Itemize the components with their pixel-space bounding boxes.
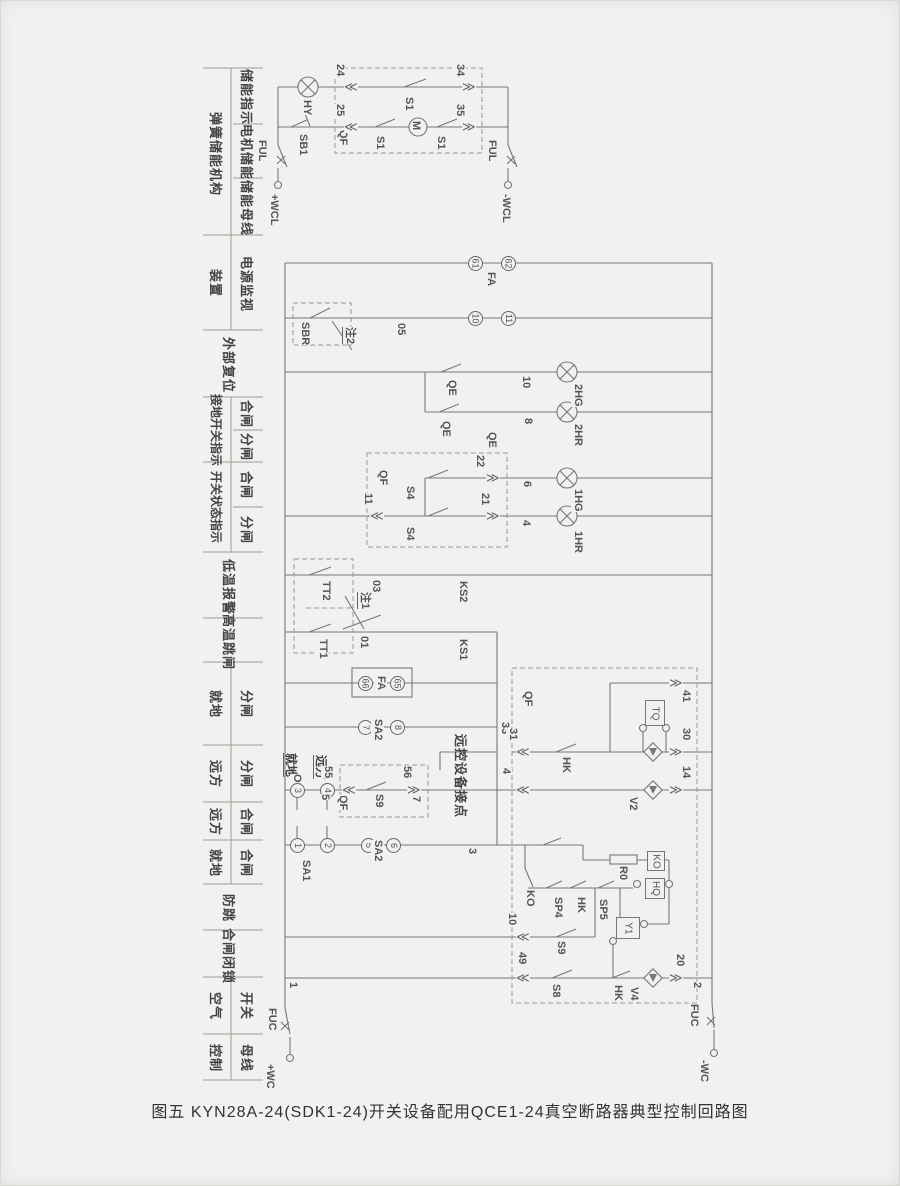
wire-20: 20 — [673, 954, 686, 966]
plug-contact-20-icon: ≫ — [669, 972, 683, 984]
box-label-qf-aux: QF — [376, 470, 389, 485]
group-label-device: 装置 — [209, 269, 222, 297]
coil-tq: TQ — [645, 700, 665, 726]
plug-contact-34-icon: ≫ — [462, 81, 476, 93]
group-label-remote: 远方 — [209, 760, 222, 788]
plug-contact-21-icon: ≫ — [486, 510, 500, 522]
plug-contact-49-icon: ≪ — [516, 972, 530, 984]
figure-caption: 图五 KYN28A-24(SDK1-24)开关设备配用QCE1-24真空断路器典… — [0, 1098, 900, 1122]
sub-label-remote-close: 合闸 — [240, 808, 253, 836]
button-label-sbr: SBR — [298, 322, 311, 345]
switch-label-sp4: SP4 — [551, 897, 564, 918]
fuse-label-ful-right: FUL — [485, 140, 498, 161]
terminal-1: 1 — [290, 838, 305, 853]
group-label-control: 控制 — [209, 1044, 222, 1072]
wire-11: 11 — [361, 493, 374, 505]
relay-label-ks1: KS1 — [456, 639, 469, 660]
wire-35: 35 — [453, 104, 466, 116]
label-remote-device-contacts: 远控设备接点 — [454, 734, 467, 818]
wire-01: 01 — [357, 636, 370, 648]
schematic-linework — [0, 0, 900, 1186]
switch-label-qe-1: QE — [445, 380, 458, 396]
terminal-label-wc-minus: -WC — [697, 1060, 710, 1082]
wire-03: 03 — [369, 580, 382, 592]
switch-label-qe-2: QE — [439, 421, 452, 437]
switch-label-s9-sel: S9 — [372, 794, 385, 807]
wire-49: 49 — [515, 952, 528, 964]
terminal-66: 66 — [358, 676, 373, 691]
switch-label-qe-3: QE — [485, 432, 498, 448]
plug-contact-11-icon: ≪ — [370, 510, 384, 522]
wire-1: 1 — [286, 982, 299, 988]
switch-label-s8: S8 — [549, 984, 562, 997]
plug-contact-10-icon: ≪ — [516, 931, 530, 943]
plug-contact-35-icon: ≫ — [462, 121, 476, 133]
relay-label-ks2: KS2 — [456, 581, 469, 602]
motor-m: M — [409, 121, 422, 130]
plug-contact-55-icon: ≪ — [342, 784, 356, 796]
resistor-label-r0: R0 — [616, 866, 629, 880]
fuse-label-fuc-left: FUC — [265, 1008, 278, 1031]
schematic-page: 弹簧储能机构 储能指示 电机储能 储能母线 装置 电源监视 外部复位 接地开关指… — [0, 0, 900, 1186]
wire-55: 55 — [321, 766, 334, 778]
fuse-label-ful-left: FUL — [255, 140, 268, 161]
relay-ko: KO — [647, 851, 665, 871]
wire-2: 2 — [690, 982, 703, 988]
switch-label-s4-1: S4 — [403, 486, 416, 499]
terminal-11: 11 — [501, 311, 516, 326]
plug-contact-22-icon: ≫ — [486, 472, 500, 484]
wire-31: 31 — [506, 728, 519, 740]
label-fa-terminals: FA — [484, 272, 497, 286]
lamp-label-hy: HY — [300, 100, 313, 115]
box-label-qf-main: QF — [521, 691, 534, 706]
wire-05: 05 — [394, 323, 407, 335]
sub-label-charge-indication: 储能指示 — [240, 69, 253, 125]
note-1: 注1 — [357, 592, 371, 609]
group-label-external-reset: 外部复位 — [222, 337, 235, 393]
diode-label-v2: V2 — [626, 797, 639, 810]
sub-label-es-open: 分闸 — [240, 433, 253, 461]
group-label-switch-status-ind: 开关状态指示 — [209, 471, 222, 543]
terminal-label-wcl-plus: +WCL — [267, 194, 280, 225]
group-label-air: 空气 — [209, 992, 222, 1020]
wire-14: 14 — [679, 766, 692, 778]
wire-6: 6 — [520, 481, 533, 487]
terminal-label-wcl-minus: -WCL — [499, 194, 512, 223]
sub-label-local-open: 分闸 — [240, 690, 253, 718]
group-label-earth-switch-ind: 接地开关指示 — [209, 394, 222, 466]
lamp-label-1hg: 1HG — [571, 489, 584, 512]
wire-56: 56 — [400, 766, 413, 778]
note-2: 注2 — [342, 327, 356, 344]
group-label-spring-mechanism: 弹簧储能机构 — [209, 112, 222, 196]
selector-pos-o: O — [290, 774, 303, 783]
group-label-remote2: 远方 — [209, 808, 222, 836]
sub-label-remote-open: 分闸 — [240, 760, 253, 788]
terminal-2: 2 — [320, 838, 335, 853]
group-label-closing-lockout: 合闸闭锁 — [222, 928, 235, 984]
switch-label-hk-v4: HK — [611, 985, 624, 1001]
wire-21: 21 — [478, 493, 491, 505]
switch-label-hk-trip: HK — [559, 757, 572, 773]
sub-label-sw-open: 分闸 — [240, 516, 253, 544]
wire-30: 30 — [679, 728, 692, 740]
lamp-label-1hr: 1HR — [571, 531, 584, 553]
switch-label-s1-right: S1 — [434, 136, 447, 149]
wire-10a: 10 — [519, 376, 532, 388]
wire-5: 5 — [318, 794, 331, 800]
group-label-low-temp-alarm: 低温报警 — [222, 559, 235, 615]
terminal-8: 8 — [390, 720, 405, 735]
group-label-local: 就地 — [209, 690, 222, 718]
plug-contact-31-icon: ≪ — [516, 746, 530, 758]
wire-25: 25 — [333, 104, 346, 116]
terminal-65: 65 — [390, 676, 405, 691]
wire-4a: 4 — [519, 520, 532, 526]
switch-label-tt2: TT2 — [319, 581, 332, 601]
switch-label-sa1: SA1 — [299, 860, 312, 881]
label-fa-box: FA — [374, 676, 387, 690]
sub-label-charge-bus: 储能母线 — [240, 180, 253, 236]
terminal-3: 3 — [290, 783, 305, 798]
plug-contact-30-icon: ≫ — [669, 746, 683, 758]
wire-34: 34 — [453, 64, 466, 76]
lamp-label-2hg: 2HG — [571, 384, 584, 407]
switch-label-s4-2: S4 — [403, 527, 416, 540]
switch-label-s1-left: S1 — [373, 136, 386, 149]
wire-22: 22 — [473, 455, 486, 467]
sub-label-air-switch: 开关 — [240, 992, 253, 1020]
terminal-61: 61 — [468, 256, 483, 271]
terminal-62: 62 — [501, 256, 516, 271]
wire-41: 41 — [679, 690, 692, 702]
coil-y1: Y1 — [616, 917, 640, 939]
wire-10b: 10 — [505, 913, 518, 925]
box-label-qf-sel: QF — [336, 795, 349, 810]
group-label-anti-pumping: 防跳 — [222, 894, 235, 922]
plug-contact-24-icon: ≪ — [344, 81, 358, 93]
plug-contact-41-icon: ≫ — [669, 677, 683, 689]
plug-contact-56-icon: ≫ — [407, 784, 421, 796]
switch-label-s1-top: S1 — [402, 97, 415, 110]
wire-3: 3 — [465, 848, 478, 854]
switch-label-sa2-open: SA2 — [371, 719, 384, 740]
fuse-label-fuc-right: FUC — [687, 1004, 700, 1027]
terminal-10: 10 — [468, 311, 483, 326]
wire-24: 24 — [333, 64, 346, 76]
coil-hq: HQ — [645, 878, 665, 899]
sub-label-power-monitor: 电源监视 — [240, 256, 253, 312]
plug-contact-14-icon: ≫ — [669, 784, 683, 796]
plug-contact-25-icon: ≪ — [344, 121, 358, 133]
wire-8: 8 — [521, 418, 534, 424]
sub-label-sw-close: 合闸 — [240, 471, 253, 499]
plug-contact-4-icon: ≪ — [516, 784, 530, 796]
terminal-6: 6 — [386, 838, 401, 853]
switch-label-s9: S9 — [554, 941, 567, 954]
sub-label-local-close: 合闸 — [240, 849, 253, 877]
switch-label-sp5: SP5 — [596, 899, 609, 920]
lamp-label-2hr: 2HR — [571, 424, 584, 446]
sub-label-motor-charge: 电机储能 — [240, 124, 253, 180]
terminal-label-wc-plus: +WC — [263, 1064, 276, 1089]
sub-label-es-close: 合闸 — [240, 400, 253, 428]
button-label-sb1: SB1 — [296, 134, 309, 155]
switch-label-sa2-close: SA2 — [371, 840, 384, 861]
wire-4b: 4 — [499, 768, 512, 774]
sub-label-control-bus: 母线 — [240, 1044, 253, 1072]
switch-label-hk-close: HK — [574, 897, 587, 913]
group-label-local2: 就地 — [209, 849, 222, 877]
diode-label-v4: V4 — [627, 987, 640, 1000]
group-label-high-temp-trip: 高温跳闸 — [222, 614, 235, 670]
switch-label-tt1: TT1 — [316, 639, 329, 659]
contact-label-ko: KO — [523, 890, 536, 907]
